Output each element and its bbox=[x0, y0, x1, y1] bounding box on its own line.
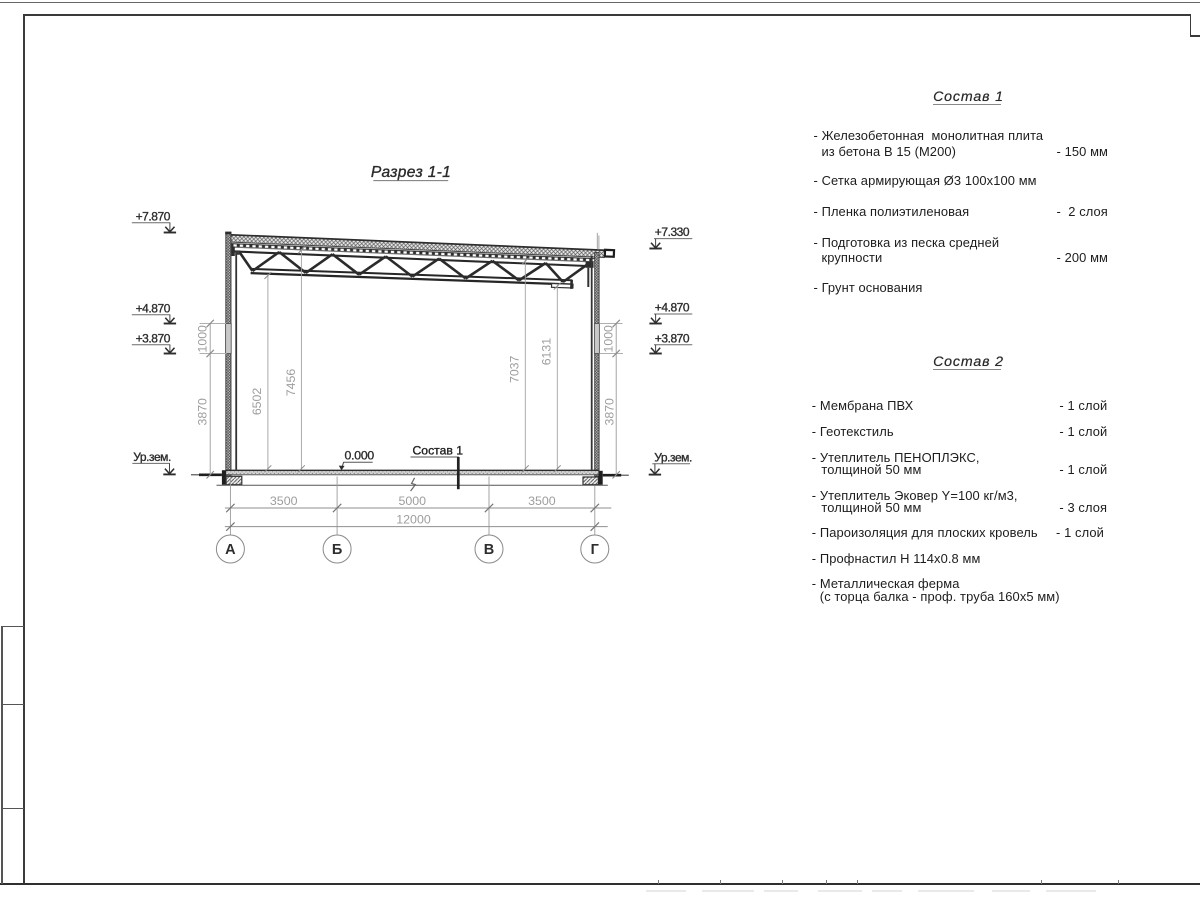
svg-text:3870: 3870 bbox=[603, 398, 617, 426]
svg-text:12000: 12000 bbox=[396, 512, 431, 526]
svg-text:+3.870: +3.870 bbox=[136, 331, 171, 345]
svg-text:6131: 6131 bbox=[540, 338, 554, 366]
svg-text:1000: 1000 bbox=[601, 325, 615, 353]
svg-text:1000: 1000 bbox=[195, 325, 209, 353]
svg-text:Б: Б bbox=[332, 542, 342, 558]
svg-text:В: В bbox=[484, 542, 494, 558]
svg-text:7456: 7456 bbox=[284, 369, 298, 397]
svg-text:+4.870: +4.870 bbox=[655, 301, 690, 315]
svg-text:+3.870: +3.870 bbox=[655, 331, 690, 345]
svg-text:5000: 5000 bbox=[399, 494, 427, 508]
svg-text:7037: 7037 bbox=[508, 355, 522, 383]
svg-text:Ур.зем.: Ур.зем. bbox=[133, 450, 171, 464]
svg-text:3870: 3870 bbox=[195, 398, 209, 426]
svg-text:Разрез 1-1: Разрез 1-1 bbox=[371, 164, 451, 181]
svg-text:Состав 1: Состав 1 bbox=[413, 444, 464, 458]
svg-text:Ур.зем.: Ур.зем. bbox=[654, 450, 692, 464]
svg-text:+7.330: +7.330 bbox=[655, 225, 690, 239]
svg-text:Г: Г bbox=[591, 542, 599, 558]
svg-text:3500: 3500 bbox=[270, 494, 298, 508]
svg-text:6502: 6502 bbox=[250, 388, 264, 416]
svg-text:+7.870: +7.870 bbox=[136, 209, 171, 223]
svg-text:3500: 3500 bbox=[528, 494, 556, 508]
svg-text:А: А bbox=[225, 542, 236, 558]
svg-text:+4.870: +4.870 bbox=[136, 301, 171, 315]
svg-text:0.000: 0.000 bbox=[345, 448, 375, 462]
